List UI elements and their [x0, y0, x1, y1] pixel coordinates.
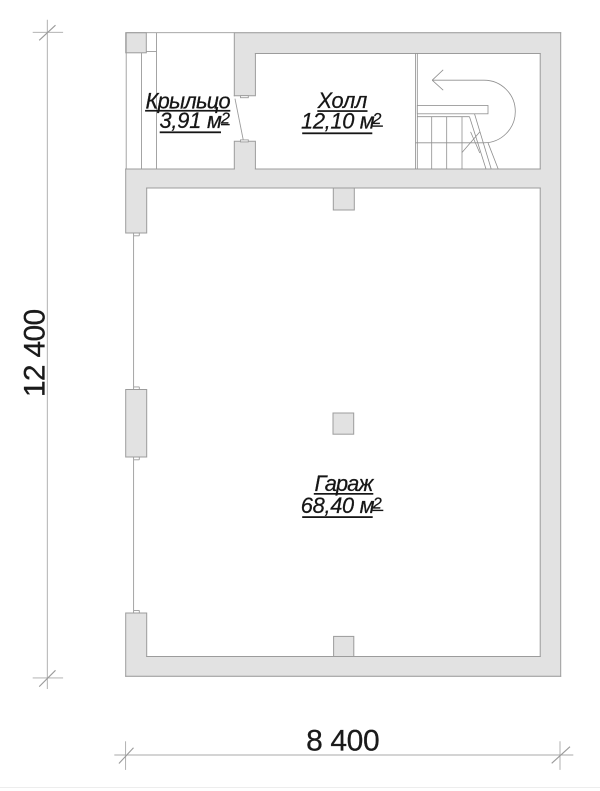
svg-text:12 400: 12 400	[19, 310, 52, 398]
svg-text:8 400: 8 400	[306, 725, 379, 758]
svg-text:68,40 м: 68,40 м	[301, 493, 375, 518]
svg-text:3,91 м: 3,91 м	[160, 108, 222, 133]
svg-text:12,10 м: 12,10 м	[301, 109, 375, 134]
